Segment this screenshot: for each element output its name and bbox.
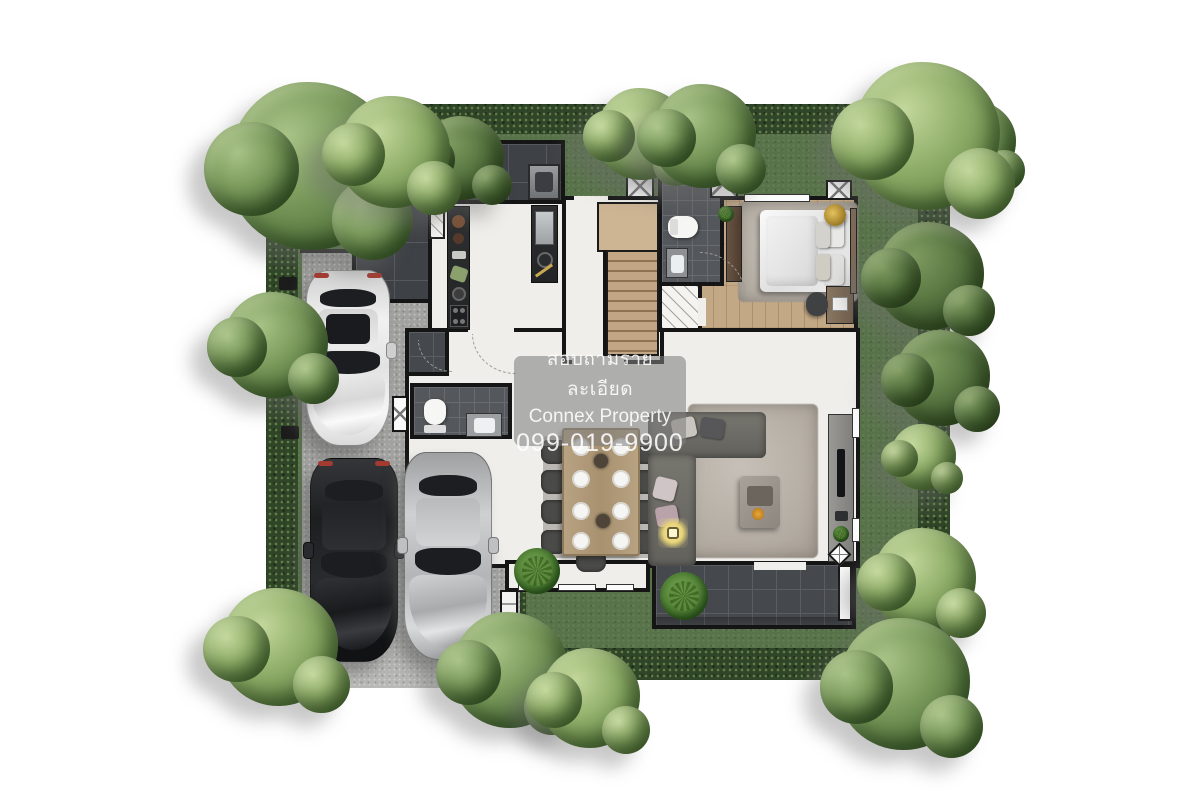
watermark: สอบถามรายละเอียด Connex Property 099-019… bbox=[514, 356, 686, 446]
sink bbox=[535, 211, 554, 245]
staircase bbox=[606, 250, 659, 356]
sofa-pillow bbox=[699, 416, 726, 439]
toilet bbox=[668, 216, 698, 238]
drain-grate bbox=[281, 426, 299, 439]
place-setting bbox=[572, 470, 590, 488]
kitchen-counter-right bbox=[531, 205, 558, 283]
basin bbox=[474, 418, 495, 433]
tree bbox=[872, 528, 976, 632]
living-window bbox=[852, 408, 860, 438]
tree bbox=[876, 222, 984, 330]
door-gap bbox=[754, 562, 806, 570]
toilet bbox=[424, 399, 446, 425]
vanity-sink bbox=[666, 248, 688, 278]
bedroom-plant bbox=[718, 206, 734, 222]
tree bbox=[838, 618, 970, 750]
place-setting bbox=[612, 532, 630, 550]
floor-plan-render: สอบถามรายละเอียด Connex Property 099-019… bbox=[0, 0, 1200, 800]
tree bbox=[652, 84, 756, 188]
media-device bbox=[835, 511, 848, 521]
place-setting bbox=[612, 502, 630, 520]
place-setting bbox=[572, 502, 590, 520]
coffee-table bbox=[740, 476, 780, 528]
tree bbox=[338, 96, 450, 208]
drain-grate bbox=[279, 277, 297, 290]
stair-landing bbox=[597, 202, 659, 252]
pot bbox=[452, 287, 466, 301]
powder-room bbox=[410, 383, 512, 439]
bowl bbox=[453, 233, 464, 244]
cutting-board bbox=[449, 265, 469, 283]
ac-unit-bedroom bbox=[826, 180, 852, 200]
floor-lamp-glow bbox=[658, 518, 688, 548]
floor-lamp bbox=[667, 527, 679, 539]
door-gap bbox=[698, 298, 706, 326]
bush bbox=[540, 648, 640, 748]
dining-window bbox=[606, 584, 634, 591]
stove bbox=[450, 305, 468, 327]
kitchen-counter-left bbox=[447, 206, 470, 330]
coffee-set bbox=[452, 215, 465, 228]
shrub bbox=[890, 424, 956, 490]
exterior-door-leaf bbox=[392, 396, 408, 432]
vanity bbox=[466, 413, 502, 437]
watermark-line2: Connex Property bbox=[529, 406, 672, 428]
fruit-bowl bbox=[752, 508, 764, 520]
console-plant bbox=[833, 526, 849, 542]
tv bbox=[837, 449, 845, 497]
headboard bbox=[850, 208, 857, 294]
watermark-line1: สอบถามรายละเอียด bbox=[514, 344, 686, 404]
bedroom-window bbox=[744, 194, 810, 202]
place-setting bbox=[572, 532, 590, 550]
stair-railing bbox=[603, 250, 606, 356]
toilet-tank bbox=[424, 425, 446, 433]
tree bbox=[894, 330, 990, 426]
dining-window bbox=[558, 584, 596, 591]
tray bbox=[452, 251, 466, 259]
place-setting bbox=[612, 470, 630, 488]
watermark-phone: 099-019-9900 bbox=[516, 429, 684, 458]
palm-plant bbox=[514, 548, 560, 594]
terrace-plant bbox=[660, 572, 708, 620]
closet bbox=[658, 282, 702, 332]
pillow bbox=[816, 222, 830, 248]
duvet bbox=[766, 216, 818, 286]
laptop bbox=[832, 297, 848, 311]
pillow bbox=[816, 254, 830, 280]
tree bbox=[852, 62, 1000, 210]
tree bbox=[222, 292, 328, 398]
gold-side-table bbox=[824, 204, 846, 226]
terrace-side-door bbox=[838, 565, 852, 621]
tray bbox=[747, 486, 773, 506]
door-gap bbox=[468, 326, 514, 334]
living-window bbox=[852, 518, 860, 542]
outdoor-sink bbox=[528, 164, 560, 200]
desk-chair bbox=[806, 292, 828, 316]
tree bbox=[220, 588, 338, 706]
centerpiece bbox=[596, 514, 610, 528]
sink-basin bbox=[535, 172, 553, 192]
